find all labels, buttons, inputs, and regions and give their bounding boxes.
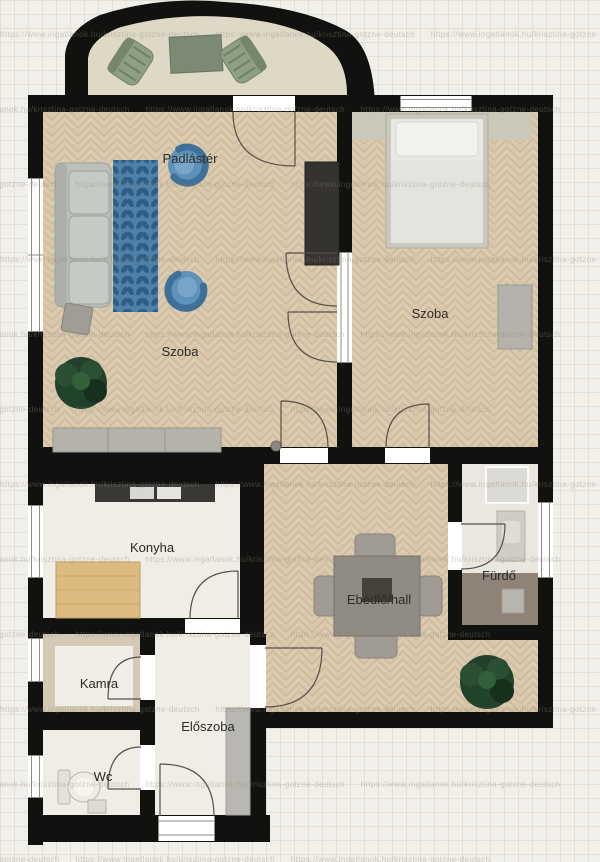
shower-icon [486,467,528,503]
kitchen-counter-icon [95,484,215,502]
floor-lamp-icon [271,441,281,451]
window-bathroom [538,502,553,578]
area-rug-icon [113,160,158,312]
room-label-living-room: Szoba [162,344,200,359]
room-label-bedroom: Szoba [412,306,450,321]
room-label-attic-balcony: Padlástér [163,151,219,166]
window-bedroom [400,96,472,111]
tall-cabinet-icon [305,162,339,265]
double-bed-icon [386,114,488,248]
dresser-icon [498,285,532,349]
room-label-bathroom: Fürdő [482,568,516,583]
kitchen-table-icon [56,562,140,618]
vanity-sink-icon [497,511,525,561]
room-label-entry-hall: Előszoba [181,719,235,734]
window-living-room [28,178,43,332]
room-label-kitchen: Konyha [130,540,175,555]
french-door [337,252,352,363]
room-label-wc: Wc [94,769,113,784]
dining-plant-icon [460,655,514,709]
entrance-door [158,816,215,841]
floor-plan: Padlástér Szoba Szoba Konyha Ebédlő/hall… [0,0,600,862]
coffee-table-icon [61,303,93,335]
floor-plan-drawing: Padlástér Szoba Szoba Konyha Ebédlő/hall… [0,0,600,862]
washing-machine-icon [502,589,524,613]
room-label-dining-hall: Ebédlő/hall [347,592,411,607]
window-pantry [28,638,43,682]
sideboard-icon [53,428,221,452]
window-kitchen [28,505,43,578]
sofa-icon [55,163,111,307]
plant-icon [55,357,107,409]
balcony-table-icon [169,35,223,74]
room-label-pantry: Kamra [80,676,119,691]
wc-sink-icon [88,800,106,813]
window-wc [28,755,43,798]
